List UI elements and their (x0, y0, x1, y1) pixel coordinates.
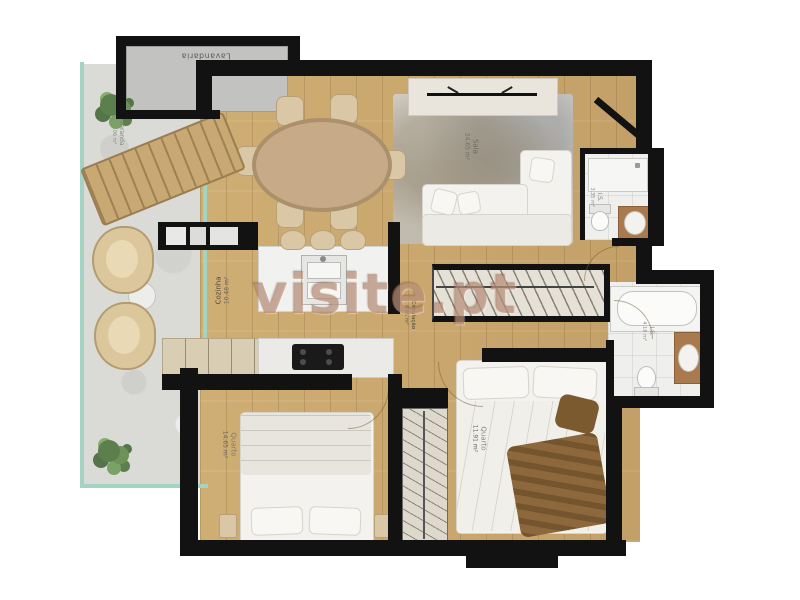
washbasin (624, 211, 646, 235)
wall-bedroom2-right (606, 404, 622, 556)
wall-top (196, 60, 652, 76)
kitchen-lower-cabinets (162, 338, 260, 378)
wall-bath1-bottom (612, 238, 664, 246)
room-area: 3.35 m² (589, 177, 596, 217)
room-name: Quarto (479, 426, 487, 450)
room-area: 10.48 m² (224, 267, 232, 313)
burner (326, 359, 332, 365)
bed2-throw-blanket (506, 432, 613, 539)
dining-table (252, 118, 392, 212)
shower-drain (635, 163, 640, 168)
toilet-bowl (637, 366, 656, 389)
label-varanda: Varanda 28.06 m² (111, 111, 125, 155)
room-name: Sala (471, 139, 479, 154)
wall-bedroom2-top (482, 348, 608, 362)
bedroom-wardrobe (402, 408, 448, 544)
bed1 (240, 412, 374, 544)
label-lavandaria: Lavandaria (136, 50, 276, 60)
tv-sideboard (408, 78, 558, 116)
wall-wardrobe-head (388, 388, 448, 408)
room-area: 24.65 m² (463, 123, 471, 169)
sofa-back (422, 214, 572, 246)
label-cozinha: Cozinha 10.48 m² (215, 267, 232, 313)
fridge-icon (166, 227, 186, 245)
burner (300, 359, 306, 365)
wall-bath1-left (580, 148, 585, 240)
burner (300, 349, 306, 355)
wall-bath2-top (648, 270, 714, 284)
burner (326, 349, 332, 355)
lounge-chair-2 (94, 302, 156, 370)
balcony-plant-bottom (98, 440, 120, 462)
nightstand-1-left (219, 514, 237, 538)
kitchen-tall-units (158, 222, 258, 250)
sofa-pillow-3 (528, 156, 555, 183)
toilet-2 (634, 366, 658, 396)
wall-bath1-right (648, 148, 664, 246)
label-quarto2: Quarto 11.91 m² (471, 415, 488, 461)
cabinet-front (210, 227, 238, 245)
sofa-pillow-2 (456, 190, 481, 215)
wall-bath1-top (580, 148, 650, 154)
wardrobe-rail (423, 411, 425, 539)
room-area: 4.18 m² (641, 311, 648, 351)
cooktop-icon (292, 344, 344, 370)
cabinet-front (190, 227, 206, 245)
laundry-wall-top (116, 36, 300, 46)
bed1-pillow-right (309, 506, 362, 536)
label-sala: Sala 24.65 m² (463, 123, 480, 169)
room-area: 14.65 m² (221, 421, 229, 467)
chair-cushion (108, 316, 140, 354)
room-name: Quarto (229, 432, 237, 456)
room-area: 28.06 m² (111, 111, 118, 155)
laundry-wall-left (116, 36, 126, 118)
label-quarto1: Quarto 14.65 m² (221, 421, 238, 467)
vanity-1 (618, 206, 652, 240)
room-name: Lavandaria (181, 51, 230, 60)
wall-bottom-stub (466, 552, 558, 568)
room-name: Varanda (118, 121, 125, 146)
room-name: I.S. (648, 326, 655, 335)
lounge-chair-1 (92, 226, 154, 294)
bed1-pillow-left (251, 506, 304, 536)
wall-bath2-right (700, 284, 714, 404)
balcony-glass-rail-left (80, 62, 84, 488)
room-name: Cozinha (215, 276, 223, 304)
kitchen-bar-stool-3 (340, 230, 366, 250)
wall-bottom (180, 540, 626, 556)
wall-balcony-corner-top (196, 60, 212, 118)
kitchen-bar-stool-1 (280, 230, 306, 250)
room-area: 11.91 m² (471, 415, 479, 461)
wall-bedroom1-left (180, 368, 198, 556)
washbasin (678, 344, 699, 372)
tv-icon (427, 93, 537, 96)
label-is2: I.S. 4.18 m² (641, 311, 655, 351)
wall-bath2-bottom (606, 396, 714, 408)
room-name: I.S. (596, 192, 603, 201)
chair-cushion (106, 240, 138, 278)
kitchen-bar-stool-2 (310, 230, 336, 250)
watermark: visite.pt (252, 262, 517, 326)
label-is1: I.S. 3.35 m² (589, 177, 603, 217)
floor-plan: Lavandaria Varanda 28.06 m² Sala 24.65 m… (0, 0, 800, 600)
